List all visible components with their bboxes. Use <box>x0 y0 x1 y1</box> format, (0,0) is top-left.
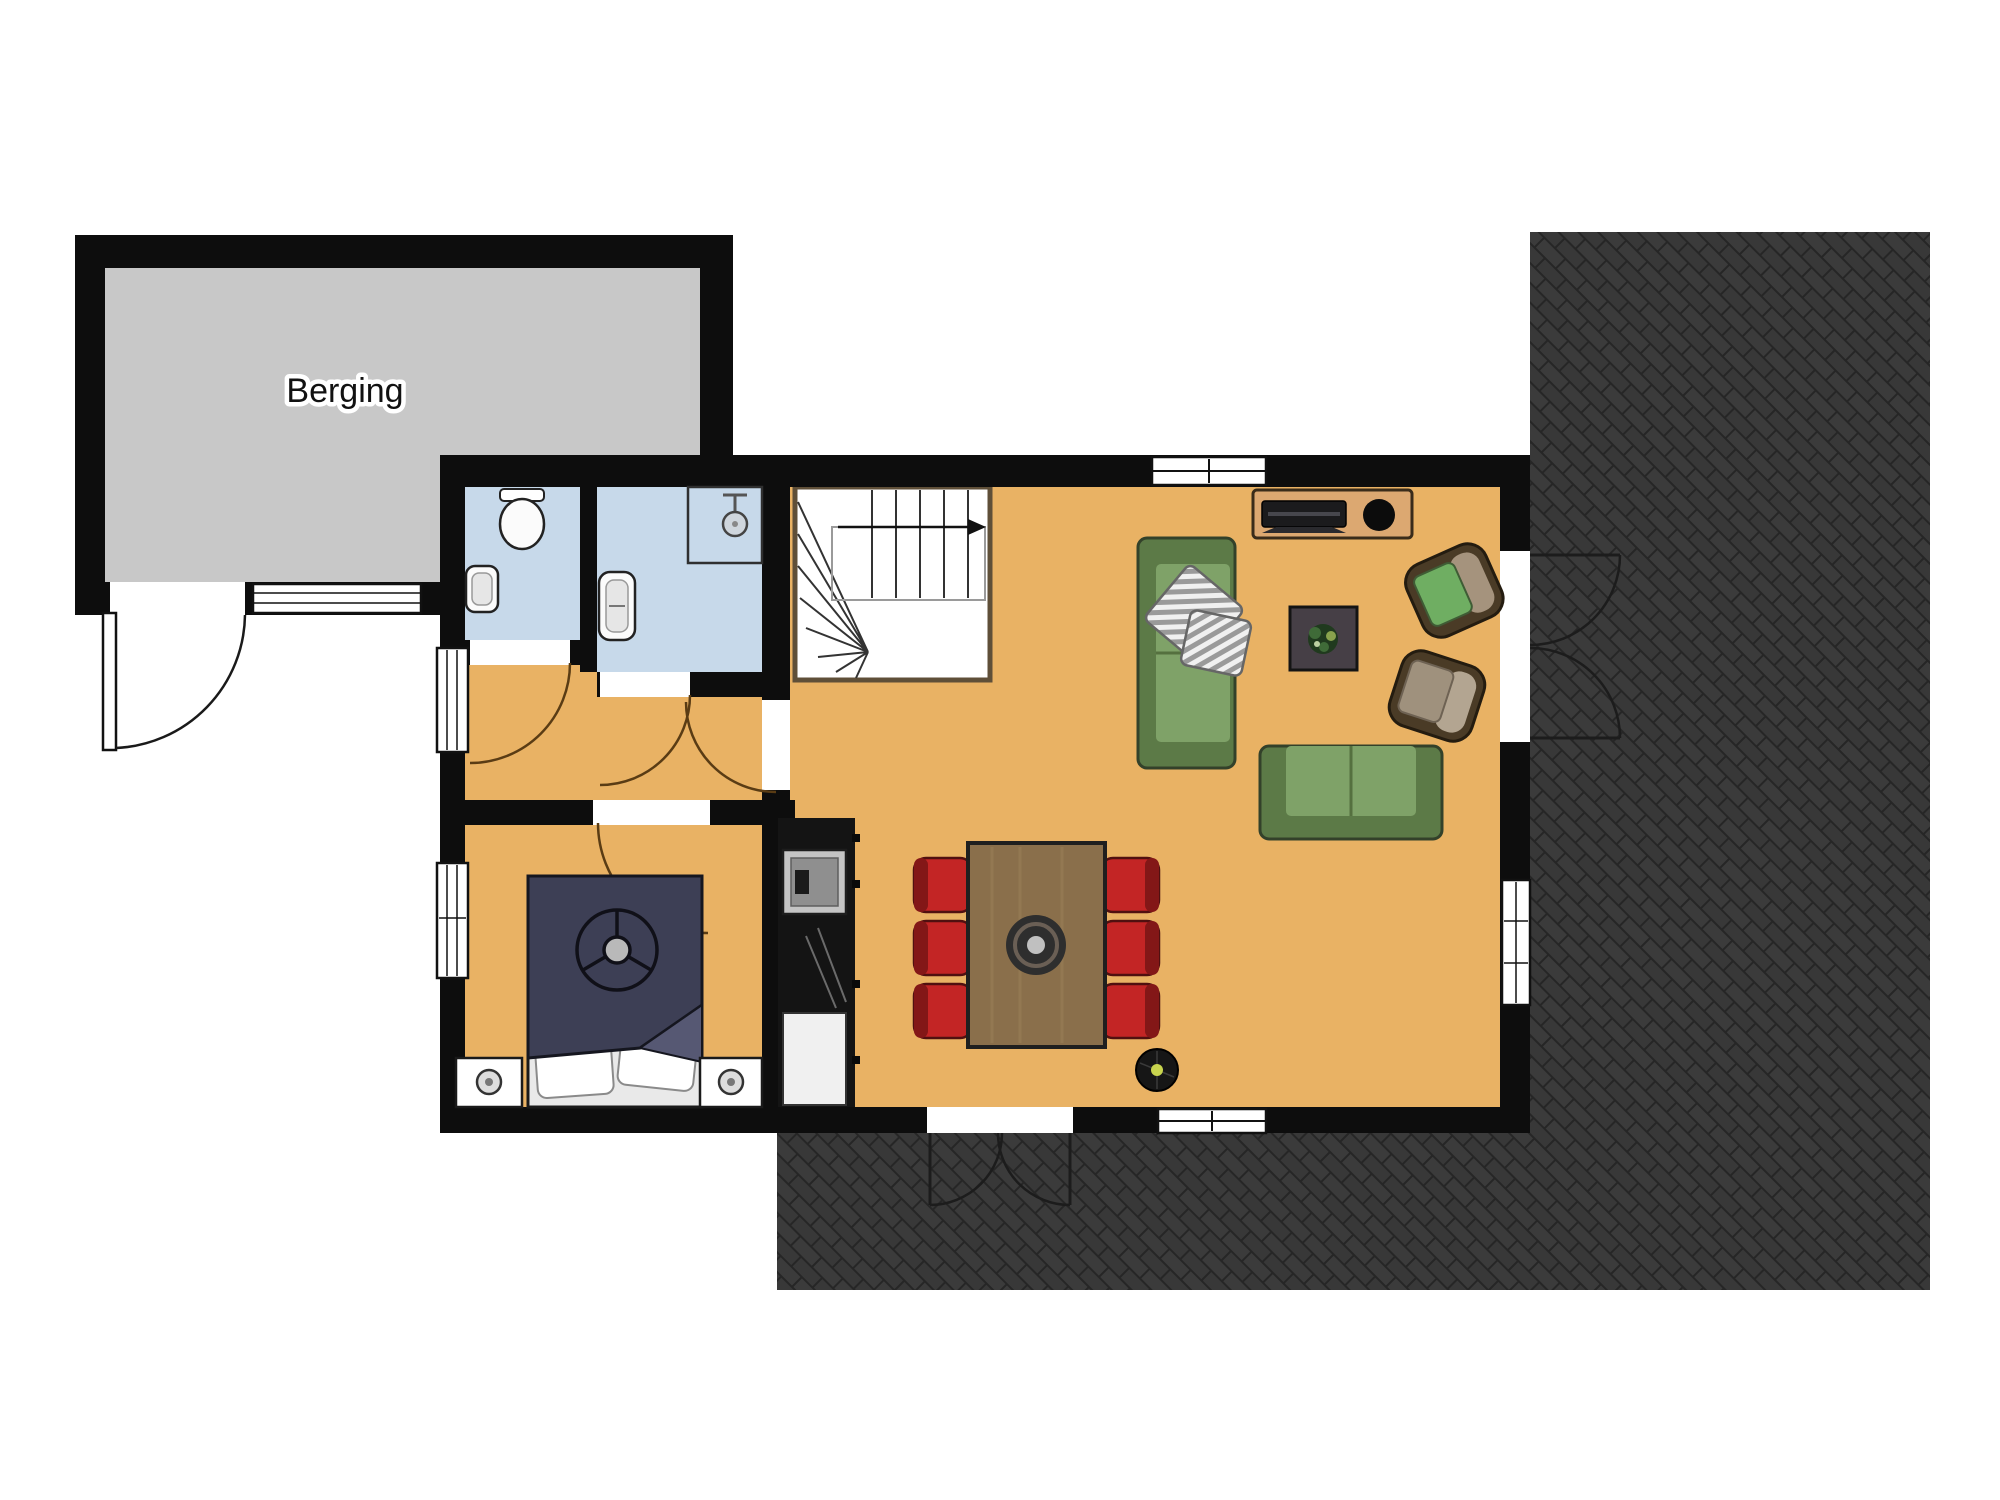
tv-cabinet <box>1253 490 1412 538</box>
storage-window <box>253 584 421 613</box>
storage-door-leaf <box>103 613 116 750</box>
staircase <box>795 487 990 680</box>
refrigerator <box>783 1013 846 1105</box>
tv <box>1262 501 1346 533</box>
dining-chair <box>1101 858 1159 912</box>
dining-chair <box>1101 984 1159 1038</box>
table-centerpiece <box>1006 915 1066 975</box>
nightstand <box>700 1058 762 1107</box>
kitchen-block <box>778 818 860 1107</box>
hallway-window <box>437 648 468 752</box>
floor-plan: Berging <box>0 0 2000 1500</box>
dining-chair <box>914 921 972 975</box>
dining-chair <box>914 984 972 1038</box>
living-room-top-window <box>1152 457 1266 485</box>
storage-room-label: Berging <box>286 372 403 410</box>
dining-set <box>914 843 1159 1047</box>
sofa-horizontal <box>1260 746 1442 839</box>
speaker <box>1363 499 1395 531</box>
stove <box>783 850 846 914</box>
dining-chair <box>1101 921 1159 975</box>
dining-chair <box>914 858 972 912</box>
coffee-table <box>1290 607 1357 670</box>
robot-vacuum <box>1136 1049 1178 1091</box>
plant <box>1308 624 1338 654</box>
living-room-bottom-window <box>1158 1109 1266 1133</box>
dining-table <box>968 843 1105 1047</box>
sofa-vertical <box>1138 538 1252 768</box>
bedroom-window <box>437 863 468 978</box>
living-room-right-window <box>1502 880 1530 1005</box>
nightstand <box>456 1058 522 1107</box>
bathroom-sink <box>599 572 635 640</box>
toilet <box>500 489 544 549</box>
double-bed <box>528 876 702 1107</box>
hand-basin <box>466 566 498 612</box>
storage-door-swing <box>116 615 245 748</box>
storage-door-opening <box>110 582 245 615</box>
